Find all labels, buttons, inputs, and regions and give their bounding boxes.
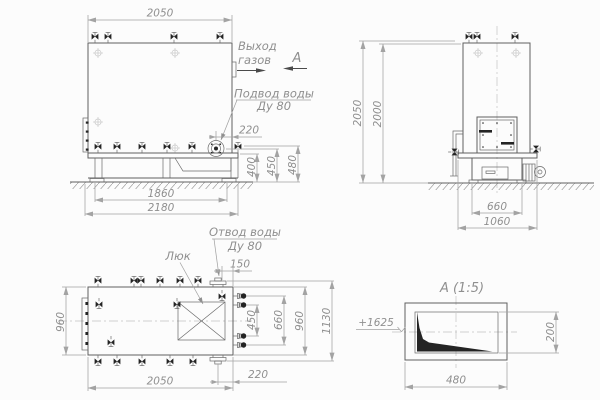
plan-top-valves bbox=[95, 276, 202, 287]
water-supply-flange bbox=[208, 141, 224, 157]
detail-dim-480: 480 bbox=[446, 375, 466, 387]
front-dim-400: 400 bbox=[246, 157, 258, 177]
detail-dim-height: 200 bbox=[499, 312, 559, 353]
front-view: 2050 Выход газов А Подвод воды Ду 80 bbox=[70, 8, 314, 217]
plan-dim-220: 220 bbox=[248, 369, 268, 381]
hatch-label-text: Люк bbox=[164, 249, 190, 263]
front-dim-220: 220 bbox=[239, 125, 259, 137]
plan-dim-450: 450 bbox=[246, 310, 258, 330]
boiler-drawing: 2050 Выход газов А Подвод воды Ду 80 bbox=[0, 0, 600, 400]
front-dim-heights: 400 450 480 bbox=[226, 146, 300, 182]
furnace-door-handle bbox=[486, 171, 495, 173]
front-dim-2050: 2050 bbox=[147, 8, 174, 20]
center-mark bbox=[511, 48, 521, 58]
door-handle-upper bbox=[479, 130, 492, 133]
detail-title: А (1:5) bbox=[439, 281, 484, 296]
ground-side bbox=[428, 183, 594, 190]
gas-flow-arrowhead-icon bbox=[256, 68, 266, 73]
side-dim-2000: 2000 bbox=[372, 100, 384, 127]
side-view: 2050 2000 660 1060 bbox=[352, 26, 594, 230]
plan-dim-960-right: 960 bbox=[294, 311, 306, 331]
plan-dim-660: 660 bbox=[273, 310, 285, 330]
front-dim-480: 480 bbox=[287, 155, 299, 175]
plan-dim-960-left: 960 bbox=[55, 312, 67, 332]
gas-outlet-label: Выход газов bbox=[237, 39, 277, 73]
front-dim-2180: 2180 bbox=[148, 202, 175, 214]
rear-bracket bbox=[83, 118, 89, 152]
side-dim-heights: 2050 2000 bbox=[352, 41, 461, 183]
section-a-arrowhead-icon bbox=[283, 66, 293, 71]
center-marks-front bbox=[93, 48, 180, 153]
front-dim-1860: 1860 bbox=[148, 188, 175, 200]
side-dim-660: 660 bbox=[487, 201, 507, 213]
water-outlet-flange bbox=[210, 278, 226, 287]
plan-bottom-flange bbox=[210, 355, 226, 364]
plan-dim-1130: 1130 bbox=[321, 307, 333, 334]
level-mark-text: +1625 bbox=[358, 317, 394, 329]
section-a-mark: А bbox=[283, 51, 307, 71]
gas-outlet-line1: Выход bbox=[238, 39, 277, 53]
water-outlet-line2: Ду 80 bbox=[227, 239, 262, 253]
side-dim-2050: 2050 bbox=[352, 99, 364, 126]
level-mark: +1625 bbox=[356, 317, 406, 332]
detail-dim-200: 200 bbox=[545, 322, 557, 342]
side-dim-widths: 660 1060 bbox=[458, 160, 537, 230]
side-dim-1060: 1060 bbox=[484, 216, 511, 228]
front-dim-flange-offset: 220 bbox=[209, 125, 262, 141]
center-mark bbox=[473, 48, 483, 58]
plan-right-nozzles bbox=[233, 293, 246, 347]
plan-view: Люк Отвод воды Ду 80 150 960 bbox=[55, 225, 334, 391]
gas-outlet-line2: газов bbox=[238, 53, 271, 67]
water-supply-line2: Ду 80 bbox=[256, 99, 291, 113]
door-handle-lower bbox=[501, 142, 514, 145]
plan-dim-flange: 150 bbox=[214, 259, 252, 287]
top-valves-front bbox=[92, 32, 224, 43]
plan-dim-150: 150 bbox=[230, 259, 250, 271]
side-rail bbox=[458, 153, 537, 158]
top-valves-side bbox=[466, 32, 519, 43]
plan-left-plate bbox=[82, 298, 88, 350]
drawing-canvas: 2050 Выход газов А Подвод воды Ду 80 bbox=[0, 0, 600, 400]
base-frame-front bbox=[88, 153, 238, 182]
water-outlet-line1: Отвод воды bbox=[209, 225, 281, 239]
plan-dim-2050: 2050 bbox=[147, 376, 174, 388]
plan-inside-valves bbox=[96, 290, 226, 347]
side-right-valve bbox=[530, 146, 541, 153]
detail-view: А (1:5) +1625 200 480 bbox=[356, 281, 559, 390]
water-supply-leader bbox=[221, 100, 237, 140]
boiler-body-side bbox=[463, 43, 530, 153]
gas-outlet-stub bbox=[232, 62, 236, 77]
front-dim-450: 450 bbox=[266, 156, 278, 176]
section-a-label: А bbox=[292, 51, 302, 66]
plan-bottom-valves bbox=[95, 355, 197, 366]
hatch-leader bbox=[180, 263, 203, 305]
plan-dim-right: 450 660 960 1130 bbox=[227, 281, 334, 361]
fan-unit bbox=[523, 164, 546, 181]
water-supply-label: Подвод воды Ду 80 bbox=[221, 87, 314, 141]
